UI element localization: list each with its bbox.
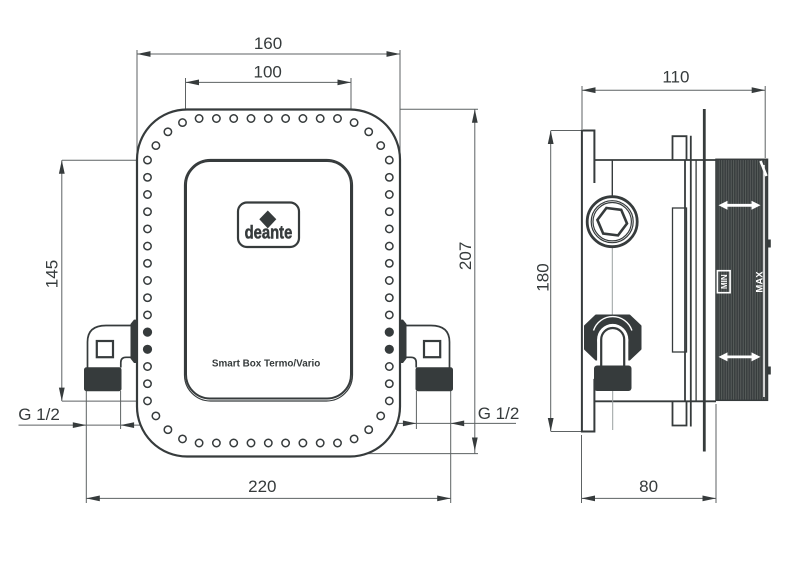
svg-text:160: 160 <box>254 34 282 53</box>
svg-text:G 1/2: G 1/2 <box>478 404 520 423</box>
svg-text:180: 180 <box>534 263 553 291</box>
svg-text:G 1/2: G 1/2 <box>18 405 60 424</box>
svg-text:deante: deante <box>245 222 293 243</box>
svg-text:110: 110 <box>662 68 689 87</box>
svg-text:80: 80 <box>639 477 658 496</box>
svg-text:207: 207 <box>456 242 475 270</box>
svg-text:MAX: MAX <box>755 271 766 293</box>
svg-text:145: 145 <box>42 260 61 288</box>
svg-text:220: 220 <box>248 477 276 496</box>
svg-text:MIN: MIN <box>720 274 729 289</box>
svg-text:100: 100 <box>254 63 282 82</box>
svg-text:Smart Box Termo/Vario: Smart Box Termo/Vario <box>212 358 320 369</box>
